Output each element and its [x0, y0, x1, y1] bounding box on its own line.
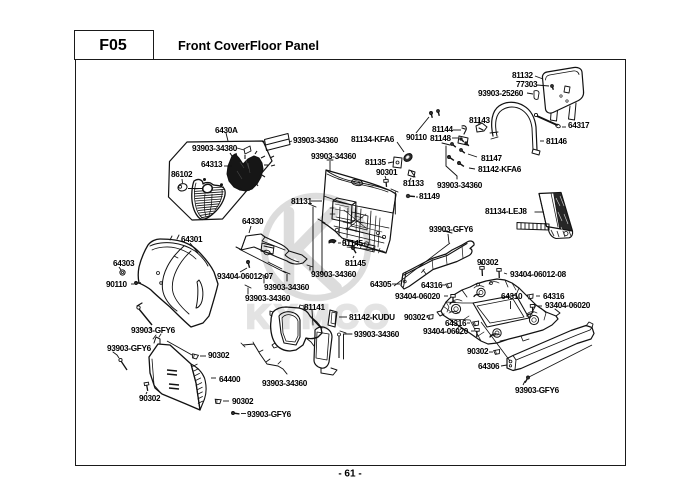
svg-text:81143: 81143: [469, 116, 491, 125]
svg-text:81141: 81141: [304, 303, 326, 312]
svg-text:93903-34360: 93903-34360: [264, 283, 310, 292]
svg-text:93903-GFY6: 93903-GFY6: [247, 410, 292, 419]
svg-text:81134-LEJ8: 81134-LEJ8: [485, 207, 527, 216]
svg-text:81142-KUDU: 81142-KUDU: [349, 313, 395, 322]
svg-text:93903-GFY6: 93903-GFY6: [515, 386, 560, 395]
svg-text:93404-06020: 93404-06020: [395, 292, 441, 301]
svg-text:64400: 64400: [219, 375, 241, 384]
svg-text:93903-34360: 93903-34360: [311, 152, 357, 161]
svg-text:90301: 90301: [376, 168, 398, 177]
svg-text:64330: 64330: [242, 217, 264, 226]
svg-text:64310: 64310: [501, 292, 523, 301]
svg-text:93903-GFY6: 93903-GFY6: [429, 225, 474, 234]
svg-text:81132: 81132: [512, 71, 534, 80]
svg-text:81149: 81149: [419, 192, 441, 201]
svg-text:81134-KFA6: 81134-KFA6: [351, 135, 395, 144]
svg-text:93404-06012-08: 93404-06012-08: [510, 270, 567, 279]
svg-text:90302: 90302: [467, 347, 489, 356]
svg-text:77303: 77303: [516, 80, 538, 89]
svg-text:F05: F05: [99, 37, 127, 54]
svg-text:93404-06020: 93404-06020: [423, 327, 469, 336]
svg-text:93903-34380: 93903-34380: [192, 144, 238, 153]
svg-text:90110: 90110: [106, 280, 128, 289]
svg-text:64301: 64301: [181, 235, 203, 244]
svg-text:81145: 81145: [342, 239, 364, 248]
svg-text:90302: 90302: [139, 394, 161, 403]
svg-text:6430A: 6430A: [215, 126, 238, 135]
svg-text:Front CoverFloor Panel: Front CoverFloor Panel: [178, 39, 319, 53]
svg-text:- 61 -: - 61 -: [338, 469, 361, 480]
svg-text:93903-GFY6: 93903-GFY6: [107, 344, 152, 353]
svg-text:81142-KFA6: 81142-KFA6: [478, 165, 522, 174]
svg-text:93903-34360: 93903-34360: [354, 330, 400, 339]
svg-text:64317: 64317: [568, 121, 590, 130]
svg-text:64303: 64303: [113, 259, 135, 268]
svg-text:93404-06020: 93404-06020: [545, 301, 591, 310]
svg-text:93903-34360: 93903-34360: [311, 270, 357, 279]
svg-text:81131: 81131: [291, 197, 313, 206]
svg-text:64313: 64313: [201, 160, 223, 169]
svg-text:93903-34360: 93903-34360: [245, 294, 291, 303]
svg-text:81145: 81145: [345, 259, 367, 268]
svg-text:90302: 90302: [232, 397, 254, 406]
svg-text:93903-25260: 93903-25260: [478, 89, 524, 98]
svg-text:64305: 64305: [370, 280, 392, 289]
svg-text:64306: 64306: [478, 362, 500, 371]
svg-text:93903-34360: 93903-34360: [262, 379, 308, 388]
svg-text:81144: 81144: [432, 125, 454, 134]
svg-text:93404-06012-07: 93404-06012-07: [217, 272, 274, 281]
svg-text:64316: 64316: [421, 281, 443, 290]
svg-text:81147: 81147: [481, 154, 503, 163]
svg-text:93903-GFY6: 93903-GFY6: [131, 326, 176, 335]
svg-text:90302: 90302: [477, 258, 499, 267]
svg-text:64316: 64316: [543, 292, 565, 301]
svg-text:93903-34360: 93903-34360: [437, 181, 483, 190]
svg-text:86102: 86102: [171, 170, 193, 179]
svg-text:81146: 81146: [546, 137, 568, 146]
svg-text:81135: 81135: [365, 158, 387, 167]
svg-text:81148: 81148: [430, 134, 452, 143]
svg-text:81133: 81133: [403, 179, 425, 188]
svg-text:90110: 90110: [406, 133, 428, 142]
svg-text:93903-34360: 93903-34360: [293, 136, 339, 145]
svg-text:90302: 90302: [208, 351, 230, 360]
svg-text:90302: 90302: [404, 313, 426, 322]
